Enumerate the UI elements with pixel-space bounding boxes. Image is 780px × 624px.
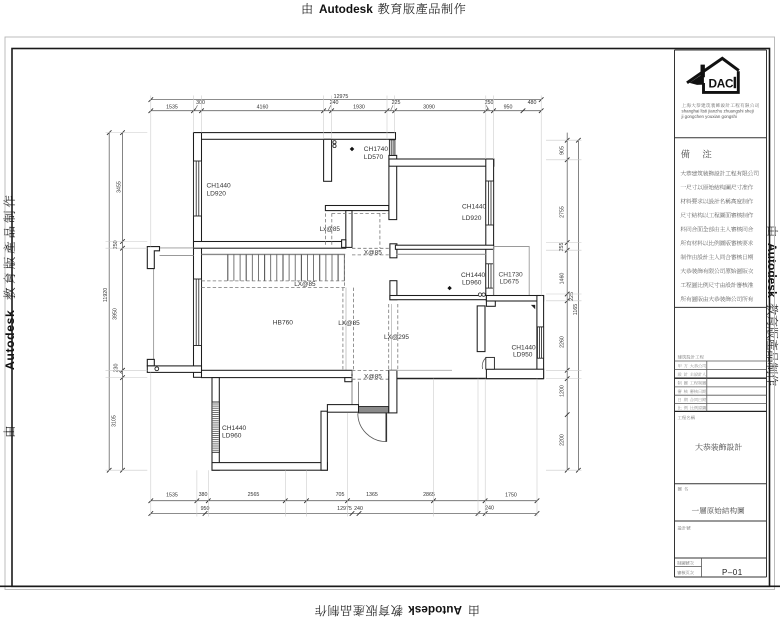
svg-text:CH1440: CH1440 [207, 183, 232, 190]
svg-text:CH1440: CH1440 [222, 425, 247, 432]
svg-text:Lx@85: Lx@85 [320, 226, 341, 233]
svg-text:1460: 1460 [560, 273, 566, 285]
svg-text:240: 240 [354, 506, 363, 512]
svg-text:240: 240 [485, 506, 494, 512]
svg-text:3950: 3950 [113, 308, 119, 320]
svg-text:HB760: HB760 [273, 319, 293, 326]
svg-text:Autodesk: Autodesk [319, 2, 373, 16]
svg-text:CH1440: CH1440 [461, 272, 486, 279]
svg-text:X@85: X@85 [364, 250, 382, 257]
svg-text:3090: 3090 [423, 105, 435, 111]
svg-text:3455: 3455 [117, 181, 123, 193]
svg-text:LD570: LD570 [364, 154, 384, 161]
svg-text:1535: 1535 [166, 492, 178, 498]
svg-text:230: 230 [114, 364, 120, 373]
svg-text::: : [706, 149, 709, 159]
svg-text:CH1730: CH1730 [499, 271, 524, 278]
svg-text:LD960: LD960 [462, 279, 482, 286]
svg-text:705: 705 [336, 492, 345, 498]
svg-text:380: 380 [199, 492, 208, 498]
svg-text:LD920: LD920 [207, 190, 227, 197]
svg-text:2755: 2755 [560, 206, 566, 218]
svg-text:905: 905 [560, 146, 566, 155]
svg-text:LX@85: LX@85 [338, 320, 360, 327]
svg-text:CH1440: CH1440 [462, 204, 487, 211]
svg-text:3105: 3105 [112, 415, 118, 427]
svg-text:LD920: LD920 [462, 215, 482, 222]
svg-text:Autodesk: Autodesk [408, 603, 462, 617]
svg-text:1750: 1750 [505, 492, 517, 498]
svg-text:LD960: LD960 [222, 432, 242, 439]
svg-text:2865: 2865 [423, 492, 435, 498]
svg-text:1200: 1200 [560, 385, 566, 397]
svg-text:1365: 1365 [366, 492, 378, 498]
svg-text:shanghai ltsti jianzhu zhua: shanghai ltsti jianzhu zhuangshi sheji [682, 108, 754, 113]
svg-text:11920: 11920 [103, 288, 109, 302]
svg-text:950: 950 [504, 105, 513, 111]
svg-text:Autodesk: Autodesk [765, 243, 779, 298]
svg-text:LX@295: LX@295 [384, 334, 409, 341]
svg-text:12975: 12975 [337, 506, 352, 512]
svg-text:1930: 1930 [353, 105, 365, 111]
svg-text:CH1740: CH1740 [364, 146, 389, 153]
svg-text:CH1440: CH1440 [512, 345, 537, 352]
svg-text:12975: 12975 [334, 94, 349, 100]
svg-text:P–01: P–01 [722, 568, 743, 577]
svg-text:ji gongchen youxian gongshi: ji gongchen youxian gongshi [681, 114, 737, 119]
svg-text:2260: 2260 [560, 336, 566, 348]
svg-text:225: 225 [569, 292, 575, 301]
svg-text:1535: 1535 [166, 105, 178, 111]
svg-text:4160: 4160 [257, 105, 269, 111]
svg-text:DAC: DAC [709, 77, 734, 91]
svg-text:2565: 2565 [248, 492, 260, 498]
svg-text:480: 480 [528, 100, 537, 106]
svg-text:1165: 1165 [573, 304, 579, 315]
svg-text:LD675: LD675 [500, 278, 520, 285]
svg-text:X@85: X@85 [364, 373, 382, 380]
svg-text:LD950: LD950 [513, 352, 533, 359]
svg-text:LX@85: LX@85 [294, 281, 316, 288]
svg-text:2200: 2200 [560, 434, 566, 446]
